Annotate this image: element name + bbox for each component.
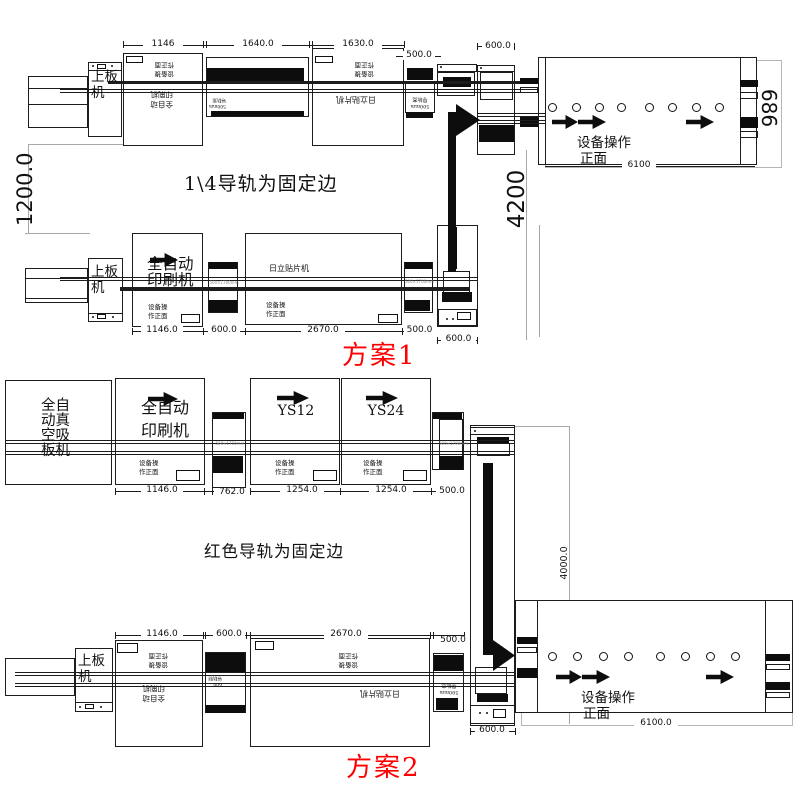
rail-clamp — [517, 637, 537, 644]
corner-belt — [477, 694, 508, 702]
plan2-title: 方案2 — [346, 754, 442, 782]
corner-inner-box — [480, 72, 513, 100]
machine-corner-rect — [181, 314, 200, 323]
dim-tick — [250, 632, 251, 639]
dim-tick — [203, 41, 204, 48]
dim-ext-line — [539, 225, 540, 337]
dock-rail — [25, 298, 88, 299]
front-label-flipped: 设备操作正面 — [350, 58, 374, 78]
loader-label: 上板机 — [91, 70, 121, 101]
panel-button-icon — [85, 704, 94, 709]
dim-tick — [477, 43, 478, 50]
vent-circle-icon — [656, 652, 665, 661]
layout-drawing: 上板机 设备操作正面 全自动印刷机 500mm导轨宽 设备操作正面 日立贴片机 … — [0, 0, 800, 800]
front-label-flipped: 设备操作正面 — [142, 649, 168, 669]
dim-1146: 1146.0 — [141, 326, 183, 335]
corner-belt — [479, 125, 514, 142]
dim-ext-line — [25, 233, 90, 234]
connector-box — [212, 412, 246, 488]
indicator-dot-icon — [480, 67, 482, 69]
dim-tick — [309, 41, 310, 48]
dim-tick — [203, 328, 204, 335]
front-label-small: 设备操作正面 — [139, 459, 163, 476]
machine-corner-rect — [255, 641, 274, 650]
lift-belt — [442, 292, 472, 302]
dim-tick — [470, 728, 471, 735]
connector-belt — [209, 262, 237, 269]
dim-tick — [203, 632, 204, 639]
dim-tick — [402, 328, 403, 335]
corner-rail — [477, 113, 545, 114]
dim-tick — [514, 43, 515, 50]
printer-label: 全自动印刷机 — [147, 257, 195, 288]
rail-clamp — [766, 682, 790, 690]
dim-tick — [115, 488, 116, 495]
plan1-title: 方案1 — [342, 342, 438, 370]
mounter-label-flipped: 日立贴片机 — [333, 92, 379, 103]
dim-ext-line — [28, 144, 128, 145]
dim-6100: 6100.0 — [634, 719, 678, 728]
dim-600-corner: 600.0 — [475, 726, 509, 735]
connector-belt — [206, 705, 245, 713]
indicator-dot-icon — [440, 66, 442, 68]
dim-1254: 1254.0 — [280, 486, 324, 495]
conveyor-rail — [5, 451, 515, 452]
front-label-flipped: 设备操作正面 — [331, 649, 358, 669]
dim-600: 600.0 — [208, 326, 240, 335]
dock-rail — [25, 278, 88, 279]
dim-1146: 1146.0 — [141, 486, 183, 495]
connector-size-label: 500×1700mm — [212, 442, 248, 446]
plan2-caption: 红色导轨为固定边 — [204, 543, 364, 561]
dim-tick — [206, 41, 207, 48]
machine-corner-rect — [313, 470, 337, 481]
dim-tick — [132, 328, 133, 335]
indicator-dot-icon — [111, 65, 113, 67]
dock-rect — [5, 658, 75, 696]
dock-rail — [28, 104, 88, 105]
conveyor-rail — [60, 89, 538, 90]
vent-circle-icon — [548, 103, 557, 112]
connector-inner-box — [439, 419, 463, 458]
connector-belt — [213, 456, 243, 473]
transfer-arrow-shaft — [483, 463, 493, 655]
connector-belt — [213, 413, 244, 419]
dim-tick — [204, 488, 205, 495]
dim-600: 600.0 — [213, 630, 245, 639]
connector-belt — [436, 698, 458, 710]
dim-1640: 1640.0 — [234, 40, 282, 49]
vent-circle-icon — [731, 652, 740, 661]
dim-tick — [312, 41, 313, 48]
dim-tick — [123, 41, 124, 48]
belt-bar — [207, 68, 304, 82]
transfer-arrow-shaft — [448, 112, 456, 272]
vacuum-loader-label: 全自动真空吸板机 — [41, 399, 75, 459]
panel-button-icon — [493, 709, 506, 718]
mounter-label: 日立贴片机 — [269, 265, 315, 274]
dim-tick — [431, 488, 432, 495]
vent-circle-icon — [595, 103, 604, 112]
connector-belt — [405, 262, 432, 269]
vent-circle-icon — [668, 103, 677, 112]
dim-500: 500.0 — [403, 51, 435, 60]
dim-762: 762.0 — [214, 488, 250, 497]
dim-600-corner: 600.0 — [441, 335, 476, 344]
rail-clamp — [520, 117, 538, 127]
vent-circle-icon — [572, 103, 581, 112]
conveyor-module — [206, 57, 309, 117]
dim-tick — [404, 41, 405, 48]
connector-belt — [439, 456, 463, 470]
indicator-dot-icon — [479, 712, 481, 714]
dim-2670: 2670.0 — [301, 326, 345, 335]
ys12-label: YS12 — [275, 404, 317, 419]
printer-label-flipped: 全自动印刷机 — [149, 89, 173, 109]
dim-2670: 2670.0 — [324, 630, 368, 639]
dim-500: 500.0 — [404, 326, 435, 335]
dim-1146: 1146.0 — [141, 630, 183, 639]
machine-corner-rect — [403, 470, 427, 481]
dim-4200: 4200 — [506, 156, 532, 242]
connector-belt — [434, 655, 463, 671]
dim-ext-line — [515, 426, 570, 427]
dim-tick — [433, 632, 434, 639]
dim-600: 600.0 — [482, 42, 514, 51]
printer-label-flipped: 全自动印刷机 — [141, 683, 165, 703]
conveyor-rail — [60, 92, 538, 93]
vent-circle-icon — [617, 103, 626, 112]
vent-circle-icon — [681, 652, 690, 661]
dim-686: 686 — [755, 83, 779, 133]
belt-bar — [211, 111, 304, 116]
oven-section-line — [740, 57, 741, 165]
vent-circle-icon — [599, 652, 608, 661]
front-label-small: 设备操作正面 — [148, 303, 170, 320]
connector-belt — [405, 300, 430, 311]
rail-clamp — [520, 78, 538, 84]
dim-line — [396, 56, 403, 57]
rail-clamp — [517, 668, 537, 678]
front-label-small: 设备操作正面 — [363, 459, 387, 476]
loader-label: 上板机 — [91, 265, 121, 296]
dim-tick — [477, 337, 478, 344]
conveyor-rail-fixed — [108, 81, 520, 84]
front-label: 设备操作 — [581, 691, 643, 706]
dim-tick — [250, 488, 251, 495]
connector-size-label: 500×1700mm — [404, 280, 435, 284]
vent-circle-icon — [645, 103, 654, 112]
dim-tick — [245, 328, 246, 335]
panel-button-icon — [97, 64, 106, 69]
dim-tick — [246, 632, 247, 639]
machine-corner-rect — [378, 314, 398, 323]
loader-label: 上板机 — [78, 654, 108, 685]
indicator-dot-icon — [92, 65, 94, 67]
dim-tick — [115, 632, 116, 639]
front-label-small: 设备操作正面 — [275, 459, 299, 476]
machine-corner-rect — [315, 56, 333, 63]
corner-rail — [477, 123, 545, 124]
panel-button-icon — [97, 314, 106, 319]
ys24-label: YS24 — [365, 404, 407, 419]
machine-corner-rect — [176, 470, 200, 481]
indicator-dot-icon — [452, 318, 454, 320]
rail-clamp — [766, 654, 790, 661]
dim-1200: 1200.0 — [15, 153, 39, 227]
indicator-dot-icon — [79, 706, 81, 708]
rail-width-label-flipped: 500mm导轨宽 — [407, 85, 433, 109]
oven-section-line — [537, 600, 538, 713]
dim-tick — [340, 488, 341, 495]
vent-circle-icon — [692, 103, 701, 112]
conveyor-rail — [5, 454, 515, 455]
front-label: 正面 — [583, 707, 615, 722]
front-label-flipped: 设备操作正面 — [150, 58, 174, 78]
vent-circle-icon — [715, 103, 724, 112]
dim-4000: 4000.0 — [560, 530, 574, 596]
vent-circle-icon — [573, 652, 582, 661]
dim-500: 500.0 — [437, 636, 469, 645]
connector-belt — [206, 653, 245, 672]
mounter-label-flipped: 日立贴片机 — [357, 686, 403, 697]
connector-belt — [209, 300, 237, 312]
rail-label-flipped: 600导轨制 — [206, 672, 222, 686]
indicator-dot-icon — [112, 316, 114, 318]
rail-width-label-flipped: 500mm导轨宽 — [206, 95, 226, 108]
machine-corner-rect — [126, 56, 143, 63]
dim-tick — [430, 632, 431, 639]
vent-circle-icon — [624, 652, 633, 661]
printer-label: 全自动印刷机 — [141, 396, 189, 442]
plan1-caption: 1\4导轨为固定边 — [184, 174, 394, 195]
vent-circle-icon — [706, 652, 715, 661]
corner-rail — [477, 116, 545, 117]
corner-strip — [470, 427, 515, 435]
front-label: 正面 — [580, 152, 612, 167]
dim-tick — [212, 488, 213, 495]
vent-circle-icon — [548, 652, 557, 661]
dim-1146: 1146 — [143, 40, 183, 49]
indicator-dot-icon — [486, 712, 488, 714]
dim-tick — [515, 728, 516, 735]
dim-6100: 6100 — [622, 161, 656, 170]
oven-section-line — [545, 57, 546, 165]
transfer-top-strip — [437, 64, 477, 72]
indicator-dot-icon — [474, 430, 476, 432]
indicator-dot-icon — [446, 318, 448, 320]
rail-clamp-outline — [766, 692, 790, 698]
front-label-small: 设备操作正面 — [266, 301, 288, 318]
corner-strip — [477, 65, 515, 72]
rail-clamp-outline — [766, 664, 790, 670]
dim-1630: 1630.0 — [334, 40, 382, 49]
panel-button-icon — [457, 312, 471, 320]
machine-corner-rect — [117, 643, 138, 653]
dock-rect — [28, 76, 88, 128]
dim-tick — [205, 632, 206, 639]
indicator-dot-icon — [92, 316, 94, 318]
corner-rail — [477, 120, 545, 121]
indicator-dot-icon — [100, 706, 102, 708]
dim-500: 500.0 — [436, 487, 468, 496]
connector-size-label: 500×1700mm — [208, 281, 240, 285]
connector-size-label: 500×1700mm — [438, 442, 466, 446]
dim-1254: 1254.0 — [369, 486, 413, 495]
rail-clamp-outline — [517, 647, 537, 653]
connector-belt — [407, 68, 433, 80]
rail-width-label-flipped: 500mm导轨宽 — [436, 671, 462, 695]
conveyor-rail — [60, 277, 478, 278]
connector-belt — [406, 112, 433, 118]
front-label: 设备操作 — [577, 136, 639, 151]
